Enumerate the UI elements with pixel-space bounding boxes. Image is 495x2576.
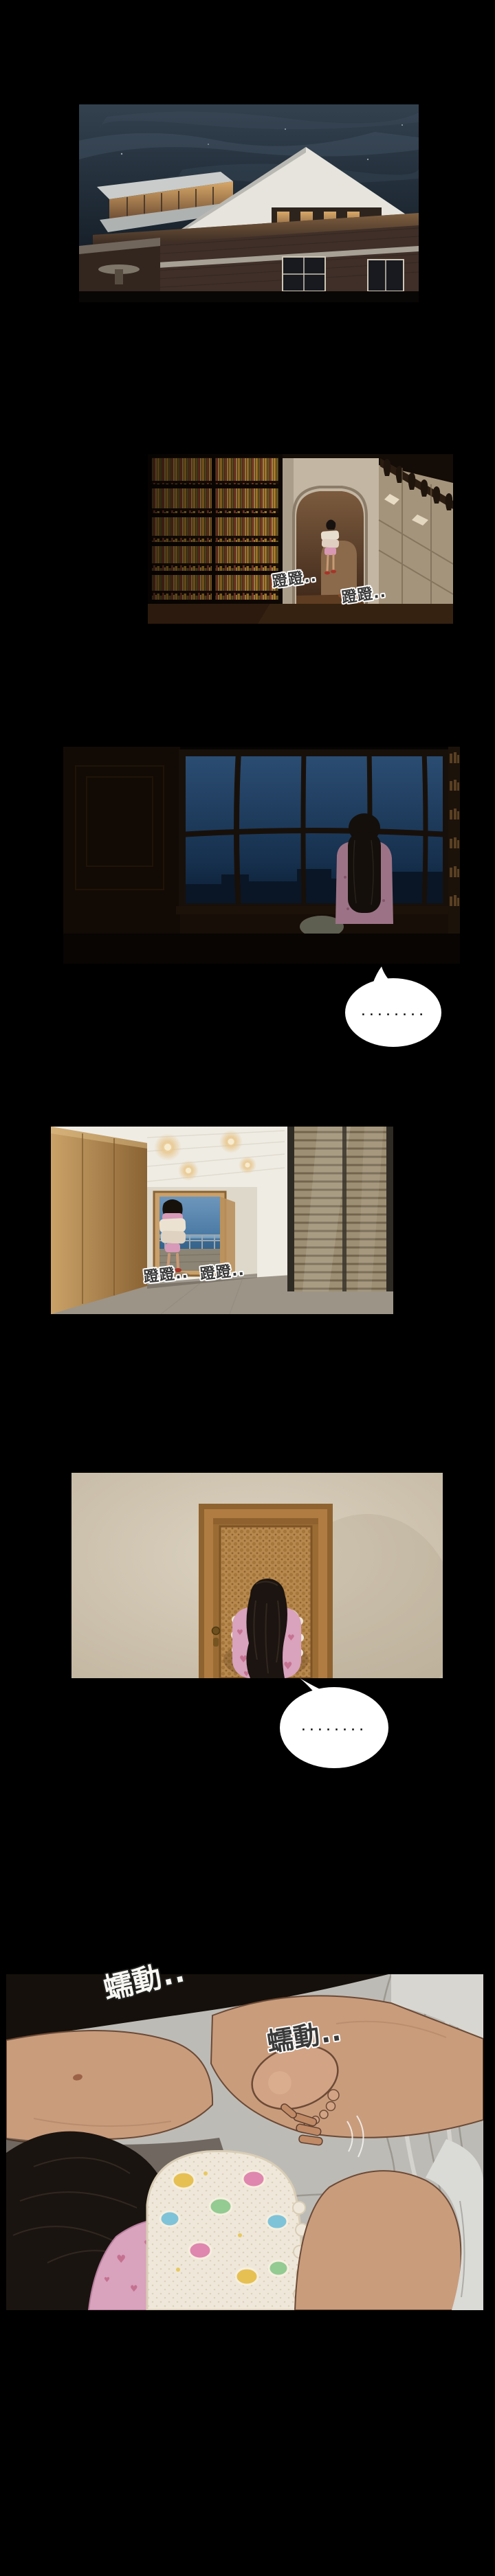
speech-bubble-1: ........ <box>342 964 444 1050</box>
panel-hallway-to-terrace <box>51 1127 393 1314</box>
night-window-illustration <box>63 747 460 964</box>
panel-bed-close-up: ♥♥ ♥♥ ♥♥ ♥ <box>6 1974 483 2310</box>
svg-text:♥: ♥ <box>283 1660 292 1672</box>
panel-library-under-stairs <box>148 454 453 624</box>
panel-house-exterior-night <box>79 104 419 302</box>
terrace-hall-illustration <box>51 1127 393 1314</box>
bed-scene-illustration: ♥♥ ♥♥ ♥♥ ♥ <box>6 1974 483 2310</box>
comic-page: ♥♥ ♥♥ ♥ <box>0 0 495 2576</box>
bedroom-door-illustration: ♥♥ ♥♥ ♥ <box>71 1473 443 1678</box>
panel-girl-at-night-window <box>63 747 460 964</box>
library-illustration <box>148 454 453 624</box>
house-night-illustration <box>79 104 419 302</box>
svg-text:♥: ♥ <box>236 1628 243 1637</box>
svg-text:♥: ♥ <box>287 1633 295 1642</box>
svg-text:♥: ♥ <box>116 2252 126 2266</box>
speech-bubble-text: ........ <box>275 1722 392 1732</box>
svg-text:♥: ♥ <box>130 2284 138 2294</box>
speech-bubble-2: ........ <box>275 1674 392 1770</box>
speech-bubble-text: ........ <box>342 1007 444 1017</box>
panel-girl-before-door: ♥♥ ♥♥ ♥ <box>71 1473 443 1678</box>
svg-text:♥: ♥ <box>104 2276 110 2284</box>
